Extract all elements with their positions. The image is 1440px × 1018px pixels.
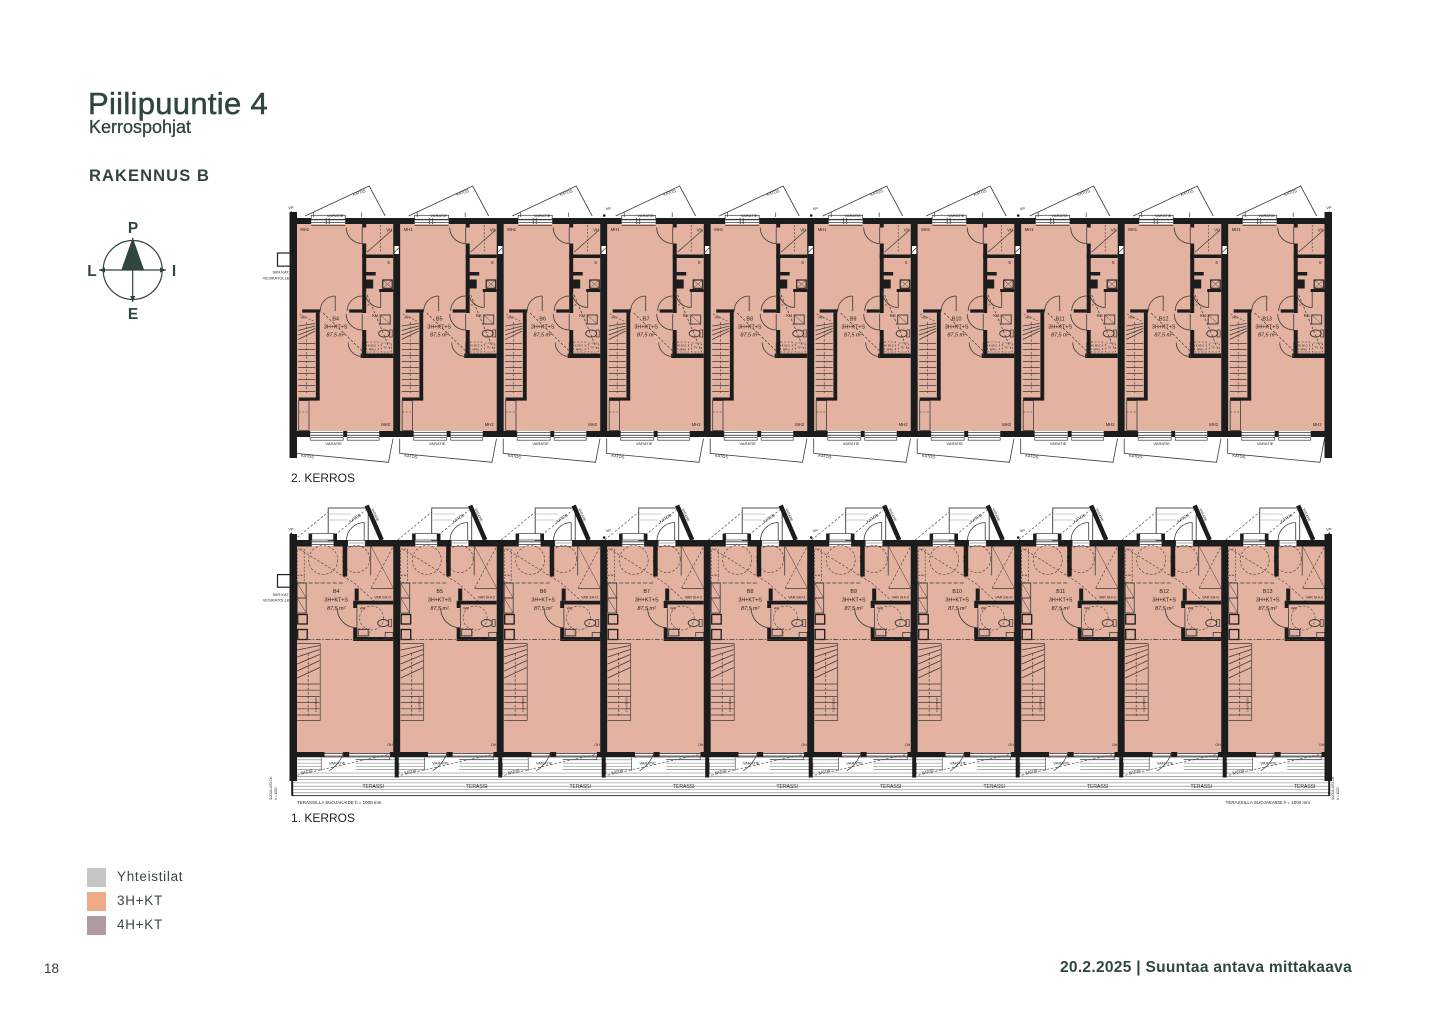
svg-text:S: S (387, 260, 390, 265)
svg-text:WC: WC (463, 607, 469, 611)
svg-text:VARATIE: VARATIE (536, 761, 553, 766)
svg-text:3H+KT+S: 3H+KT+S (1152, 325, 1176, 331)
svg-text:KATOS: KATOS (973, 188, 987, 197)
svg-text:WC: WC (981, 607, 987, 611)
svg-text:VESIKATOLLE: VESIKATOLLE (263, 275, 290, 280)
svg-text:VH: VH (697, 228, 703, 233)
svg-text:MH2: MH2 (1002, 422, 1012, 427)
svg-text:VP: VP (1326, 205, 1332, 210)
svg-text:MH2: MH2 (1313, 422, 1323, 427)
svg-text:MH2: MH2 (795, 422, 805, 427)
svg-text:KH: KH (476, 313, 482, 318)
svg-text:TERASSI: TERASSI (1087, 784, 1108, 790)
svg-text:VARATIE: VARATIE (843, 441, 860, 446)
svg-text:VP: VP (813, 206, 819, 211)
svg-text:VARATIE: VARATIE (739, 441, 756, 446)
svg-text:VH: VH (1318, 228, 1324, 233)
svg-text:MH1: MH1 (921, 227, 931, 232)
svg-text:KATOS: KATOS (508, 453, 522, 460)
svg-text:KATOS: KATOS (404, 453, 418, 460)
svg-text:MH1: MH1 (818, 227, 828, 232)
svg-text:B6: B6 (539, 317, 546, 323)
svg-text:VARATIE: VARATIE (846, 761, 863, 766)
svg-text:VARATIE: VARATIE (637, 213, 654, 218)
svg-text:B8: B8 (747, 589, 754, 595)
svg-text:87,5 m²: 87,5 m² (741, 333, 759, 339)
svg-text:TERASSI: TERASSI (1190, 784, 1211, 790)
svg-text:VARATIE: VARATIE (532, 441, 549, 446)
svg-text:3H+KT+S: 3H+KT+S (428, 598, 452, 604)
svg-text:MH2: MH2 (1106, 422, 1116, 427)
svg-text:VH: VH (490, 228, 496, 233)
svg-text:P: P (128, 220, 138, 237)
svg-text:OH: OH (594, 743, 600, 747)
svg-text:87,5 m²: 87,5 m² (430, 333, 448, 339)
svg-text:B4: B4 (332, 317, 339, 323)
svg-text:VARATIE: VARATIE (743, 761, 760, 766)
svg-text:VARATIE: VARATIE (1155, 213, 1172, 218)
svg-text:B7: B7 (643, 317, 650, 323)
svg-text:3H+KT+S: 3H+KT+S (738, 598, 762, 604)
svg-text:B7: B7 (643, 589, 650, 595)
svg-text:KATOS: KATOS (1180, 188, 1194, 197)
svg-text:APK1: APK1 (472, 348, 480, 352)
svg-text:87,5 m²: 87,5 m² (1051, 333, 1069, 339)
svg-text:3H+KT+S: 3H+KT+S (427, 325, 451, 331)
svg-text:B12: B12 (1159, 317, 1169, 323)
svg-text:3H+KT+S: 3H+KT+S (634, 325, 658, 331)
svg-text:KATOS: KATOS (1076, 188, 1090, 197)
svg-text:VARATIE: VARATIE (1051, 213, 1068, 218)
svg-text:87,5 m²: 87,5 m² (638, 606, 656, 612)
svg-text:APK1: APK1 (886, 348, 894, 352)
svg-text:3H+KT+S: 3H+KT+S (324, 325, 348, 331)
svg-text:VARATIE: VARATIE (429, 441, 446, 446)
svg-text:KATOS: KATOS (818, 453, 832, 460)
svg-text:VARATIE: VARATIE (325, 441, 342, 446)
svg-text:TV: TV (1004, 346, 1008, 350)
svg-text:VARATIE: VARATIE (950, 761, 967, 766)
svg-text:VH: VH (1214, 228, 1220, 233)
svg-text:OH: OH (698, 743, 704, 747)
svg-text:S: S (1112, 260, 1115, 265)
svg-text:APK1: APK1 (679, 348, 687, 352)
svg-text:VH: VH (593, 228, 599, 233)
svg-text:VARATIE: VARATIE (639, 761, 656, 766)
svg-text:VARATIE: VARATIE (1257, 441, 1274, 446)
svg-text:B10: B10 (952, 589, 962, 595)
svg-text:VH: VH (904, 228, 910, 233)
svg-text:87,5 m²: 87,5 m² (844, 333, 862, 339)
svg-text:WC: WC (1291, 607, 1297, 611)
svg-text:KH: KH (579, 313, 585, 318)
svg-text:TERASSI: TERASSI (1294, 784, 1315, 790)
svg-text:87,5 m²: 87,5 m² (741, 606, 759, 612)
svg-text:KH: KH (890, 313, 896, 318)
svg-text:OH: OH (1215, 743, 1221, 747)
svg-text:OH: OH (1008, 743, 1014, 747)
svg-text:3H+KT+S: 3H+KT+S (738, 325, 762, 331)
svg-text:S: S (1215, 260, 1218, 265)
svg-text:MH2: MH2 (1209, 422, 1219, 427)
svg-text:87,5 m²: 87,5 m² (534, 333, 552, 339)
svg-text:KATOS: KATOS (352, 188, 366, 197)
svg-text:MH1: MH1 (1025, 227, 1035, 232)
svg-text:MH1: MH1 (1128, 227, 1138, 232)
svg-text:87,5 m²: 87,5 m² (431, 606, 449, 612)
svg-text:VP: VP (606, 528, 612, 533)
svg-text:TERASSILLA SUOJAKAIDE h = 1000: TERASSILLA SUOJAKAIDE h = 1000 mm (1226, 800, 1311, 805)
svg-text:VARATIE: VARATIE (327, 213, 344, 218)
svg-text:87,5 m²: 87,5 m² (327, 333, 345, 339)
svg-text:MH1: MH1 (1232, 227, 1242, 232)
svg-text:3H+KT+S: 3H+KT+S (531, 325, 555, 331)
svg-text:WC: WC (567, 607, 573, 611)
svg-text:B5: B5 (436, 317, 443, 323)
svg-text:KATOS: KATOS (611, 453, 625, 460)
svg-text:VARATIE: VARATIE (329, 761, 346, 766)
svg-text:KH: KH (683, 313, 689, 318)
svg-text:VAR SH+2: VAR SH+2 (1306, 596, 1323, 600)
svg-text:3H+KT+S: 3H+KT+S (324, 598, 348, 604)
svg-text:VAR SH+2: VAR SH+2 (788, 596, 805, 600)
svg-text:KATOS: KATOS (559, 188, 573, 197)
svg-text:KATOS: KATOS (1232, 453, 1246, 460)
svg-text:B5: B5 (436, 589, 443, 595)
svg-text:B8: B8 (746, 317, 753, 323)
svg-text:VESIKATOLLE: VESIKATOLLE (263, 598, 290, 603)
svg-text:S: S (801, 260, 804, 265)
svg-text:VARATIE: VARATIE (432, 761, 449, 766)
svg-text:L: L (87, 263, 96, 280)
svg-text:1. KERROS: 1. KERROS (291, 811, 355, 825)
svg-text:KH: KH (786, 313, 792, 318)
svg-text:S: S (491, 260, 494, 265)
svg-text:VP: VP (1326, 527, 1332, 532)
svg-text:3H+KT+S: 3H+KT+S (945, 598, 969, 604)
svg-text:OH: OH (801, 743, 807, 747)
svg-text:TERASSI: TERASSI (362, 784, 383, 790)
svg-text:TV: TV (1315, 346, 1319, 350)
svg-text:17x178/260: 17x178/260 (625, 697, 629, 712)
svg-text:B11: B11 (1056, 589, 1065, 595)
svg-text:APK1: APK1 (1197, 348, 1205, 352)
svg-text:OH: OH (1319, 743, 1325, 747)
svg-text:TV: TV (901, 346, 905, 350)
svg-text:B13: B13 (1263, 589, 1273, 595)
svg-text:3H+KT+S: 3H+KT+S (635, 598, 659, 604)
svg-text:VARATIE: VARATIE (1260, 761, 1277, 766)
svg-text:WC: WC (877, 607, 883, 611)
svg-text:MH1: MH1 (507, 227, 517, 232)
svg-text:VAR SH+2: VAR SH+2 (685, 596, 702, 600)
svg-text:KATOS: KATOS (766, 188, 780, 197)
svg-text:KH: KH (372, 313, 378, 318)
svg-text:VP: VP (288, 205, 294, 210)
svg-text:MH1: MH1 (714, 227, 724, 232)
svg-text:SIIR.KAT.: SIIR.KAT. (272, 592, 289, 597)
svg-text:SUOJA-AITA Dh: SUOJA-AITA Dh (1331, 776, 1335, 800)
svg-text:h = 1000: h = 1000 (1336, 787, 1340, 800)
svg-text:WC: WC (774, 607, 780, 611)
svg-text:VARATIE: VARATIE (1258, 213, 1275, 218)
svg-text:VH: VH (386, 228, 392, 233)
svg-text:WC: WC (1084, 607, 1090, 611)
svg-text:B9: B9 (850, 589, 857, 595)
svg-text:S: S (594, 260, 597, 265)
svg-text:APK1: APK1 (990, 348, 998, 352)
svg-text:VP: VP (1020, 206, 1026, 211)
svg-text:87,5 m²: 87,5 m² (1155, 606, 1173, 612)
svg-text:3H+KT+S: 3H+KT+S (531, 598, 555, 604)
svg-text:17x178/260: 17x178/260 (418, 697, 422, 712)
svg-text:E: E (128, 306, 138, 323)
svg-text:OH: OH (905, 743, 911, 747)
svg-text:MH2: MH2 (485, 422, 495, 427)
svg-text:WC: WC (360, 607, 366, 611)
svg-text:VP: VP (606, 206, 612, 211)
svg-text:VP: VP (813, 528, 819, 533)
svg-text:MH1: MH1 (611, 227, 621, 232)
svg-text:h = 1000: h = 1000 (274, 787, 278, 800)
svg-text:MH2: MH2 (381, 422, 391, 427)
svg-text:TERASSILLA SUOJAKAIDE h = 1000: TERASSILLA SUOJAKAIDE h = 1000 mm (297, 800, 382, 805)
svg-text:APK1: APK1 (783, 348, 791, 352)
svg-text:B10: B10 (952, 317, 962, 323)
svg-text:17x178/260: 17x178/260 (832, 697, 836, 712)
svg-text:OH: OH (1112, 743, 1118, 747)
svg-text:87,5 m²: 87,5 m² (1052, 606, 1070, 612)
svg-text:17x178/260: 17x178/260 (1039, 697, 1043, 712)
svg-text:87,5 m²: 87,5 m² (845, 606, 863, 612)
svg-text:MH2: MH2 (692, 422, 702, 427)
svg-text:APK1: APK1 (1300, 348, 1308, 352)
svg-text:87,5 m²: 87,5 m² (948, 333, 966, 339)
svg-text:VH: VH (800, 228, 806, 233)
svg-text:APK1: APK1 (1093, 348, 1101, 352)
svg-text:S: S (1319, 260, 1322, 265)
svg-text:B6: B6 (540, 589, 547, 595)
svg-text:KH: KH (1097, 313, 1103, 318)
svg-text:MH2: MH2 (588, 422, 598, 427)
svg-text:3H+KT+S: 3H+KT+S (1256, 598, 1280, 604)
svg-text:VARATIE: VARATIE (1050, 441, 1067, 446)
svg-text:B11: B11 (1056, 317, 1065, 323)
svg-text:B12: B12 (1159, 589, 1169, 595)
svg-text:VAR SH+2: VAR SH+2 (995, 596, 1012, 600)
svg-text:87,5 m²: 87,5 m² (1259, 606, 1277, 612)
svg-text:KATOS: KATOS (455, 188, 469, 197)
svg-text:KH: KH (1304, 313, 1310, 318)
svg-text:WC: WC (670, 607, 676, 611)
svg-text:17x178/260: 17x178/260 (1246, 697, 1250, 712)
svg-text:TV: TV (487, 346, 491, 350)
svg-text:VARATIE: VARATIE (636, 441, 653, 446)
svg-text:3H+KT+S: 3H+KT+S (1049, 598, 1073, 604)
svg-text:VARATIE: VARATIE (1157, 761, 1174, 766)
svg-text:17x178/260: 17x178/260 (935, 697, 939, 712)
svg-text:87,5 m²: 87,5 m² (327, 606, 345, 612)
svg-text:VARATIE: VARATIE (844, 213, 861, 218)
svg-text:MH2: MH2 (899, 422, 909, 427)
svg-text:KATOS: KATOS (922, 453, 936, 460)
svg-text:S: S (1008, 260, 1011, 265)
svg-text:TERASSI: TERASSI (466, 784, 487, 790)
svg-text:87,5 m²: 87,5 m² (637, 333, 655, 339)
svg-text:3H+KT+S: 3H+KT+S (945, 325, 969, 331)
svg-text:VAR SH+2: VAR SH+2 (478, 596, 495, 600)
svg-text:VARATIE: VARATIE (946, 441, 963, 446)
svg-text:TV: TV (1211, 346, 1215, 350)
svg-text:VARATIE: VARATIE (534, 213, 551, 218)
svg-text:3H+KT+S: 3H+KT+S (1152, 598, 1176, 604)
svg-text:17x178/260: 17x178/260 (728, 697, 732, 712)
svg-text:WC: WC (1188, 607, 1194, 611)
svg-text:87,5 m²: 87,5 m² (1258, 333, 1276, 339)
svg-text:VARATIE: VARATIE (948, 213, 965, 218)
svg-text:KATOS: KATOS (301, 453, 315, 460)
svg-text:VARATIE: VARATIE (430, 213, 447, 218)
svg-text:KH: KH (993, 313, 999, 318)
svg-text:I: I (172, 263, 176, 280)
svg-text:TERASSI: TERASSI (673, 784, 694, 790)
svg-text:17x178/260: 17x178/260 (314, 697, 318, 712)
svg-text:KH: KH (1200, 313, 1206, 318)
svg-text:2. KERROS: 2. KERROS (291, 471, 355, 485)
svg-text:VAR SH+2: VAR SH+2 (1099, 596, 1116, 600)
svg-text:KATOS: KATOS (869, 188, 883, 197)
svg-text:MH1: MH1 (300, 227, 310, 232)
svg-text:SIIR.KAT.: SIIR.KAT. (272, 270, 289, 275)
svg-text:TV: TV (797, 346, 801, 350)
svg-text:KATOS: KATOS (1129, 453, 1143, 460)
svg-text:B4: B4 (333, 589, 340, 595)
svg-text:VAR SH+2: VAR SH+2 (1202, 596, 1219, 600)
svg-text:VP: VP (288, 527, 294, 532)
svg-text:VAR SH+2: VAR SH+2 (581, 596, 598, 600)
svg-text:VARATIE: VARATIE (1153, 441, 1170, 446)
svg-text:OH: OH (491, 743, 497, 747)
svg-text:3H+KT+S: 3H+KT+S (1255, 325, 1279, 331)
svg-text:TV: TV (694, 346, 698, 350)
svg-text:TERASSI: TERASSI (880, 784, 901, 790)
svg-text:S: S (698, 260, 701, 265)
svg-text:3H+KT+S: 3H+KT+S (842, 598, 866, 604)
svg-text:TERASSI: TERASSI (983, 784, 1004, 790)
svg-text:87,5 m²: 87,5 m² (948, 606, 966, 612)
svg-text:TERASSI: TERASSI (569, 784, 590, 790)
svg-text:3H+KT+S: 3H+KT+S (1048, 325, 1072, 331)
svg-text:S: S (905, 260, 908, 265)
svg-text:KATOS: KATOS (1025, 453, 1039, 460)
svg-text:87,5 m²: 87,5 m² (534, 606, 552, 612)
svg-text:TERASSI: TERASSI (776, 784, 797, 790)
svg-text:APK1: APK1 (576, 348, 584, 352)
svg-text:VP: VP (1020, 528, 1026, 533)
svg-text:TV: TV (383, 346, 387, 350)
svg-text:KATOS: KATOS (662, 188, 676, 197)
svg-text:KATOS: KATOS (715, 453, 729, 460)
svg-text:VARATIE: VARATIE (1053, 761, 1070, 766)
svg-text:87,5 m²: 87,5 m² (1155, 333, 1173, 339)
svg-text:MH1: MH1 (404, 227, 414, 232)
svg-text:17x178/260: 17x178/260 (521, 697, 525, 712)
svg-text:VH: VH (1007, 228, 1013, 233)
svg-text:VAR SH+2: VAR SH+2 (374, 596, 391, 600)
svg-text:B9: B9 (850, 317, 857, 323)
svg-text:TV: TV (590, 346, 594, 350)
svg-text:SUOJA-AITA Dh: SUOJA-AITA Dh (269, 776, 273, 800)
svg-text:B13: B13 (1262, 317, 1272, 323)
svg-text:TV: TV (1108, 346, 1112, 350)
svg-text:VAR SH+2: VAR SH+2 (892, 596, 909, 600)
svg-text:VH: VH (1111, 228, 1117, 233)
svg-text:3H+KT+S: 3H+KT+S (841, 325, 865, 331)
svg-text:VARATIE: VARATIE (741, 213, 758, 218)
svg-text:17x178/260: 17x178/260 (1142, 697, 1146, 712)
svg-text:OH: OH (387, 743, 393, 747)
svg-text:KATOS: KATOS (1283, 188, 1297, 197)
svg-text:APK1: APK1 (369, 348, 377, 352)
